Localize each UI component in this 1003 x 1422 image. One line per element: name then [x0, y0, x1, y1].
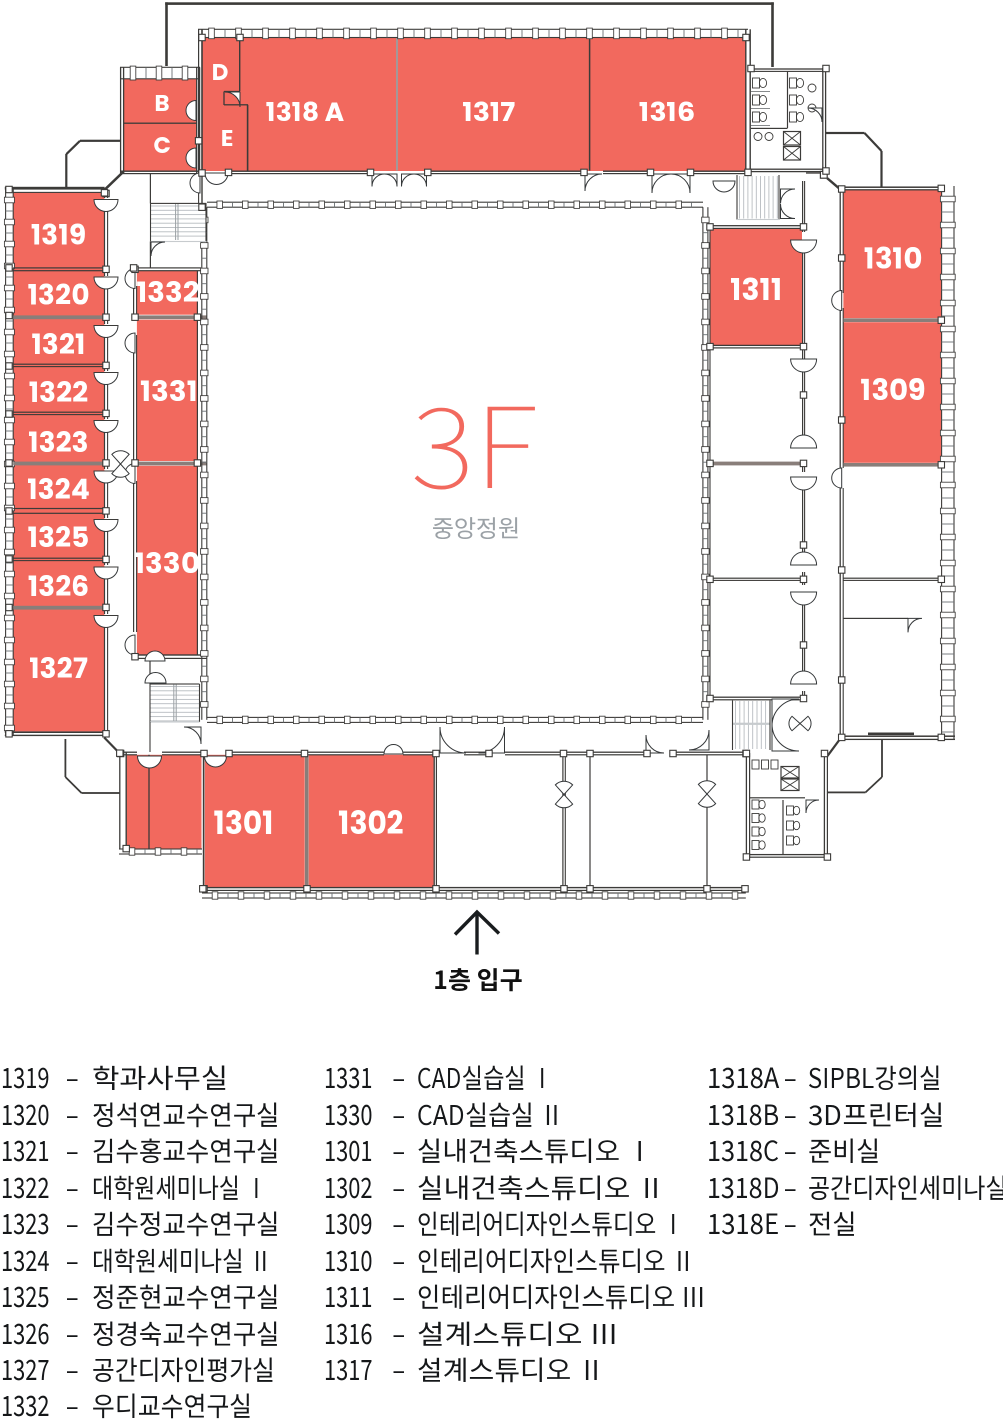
- svg-text:중앙정원: 중앙정원: [432, 509, 520, 544]
- svg-text:1316: 1316: [639, 95, 695, 131]
- svg-text:1320: 1320: [28, 276, 90, 315]
- svg-text:1325: 1325: [28, 518, 90, 557]
- svg-text:1327: 1327: [29, 649, 87, 688]
- svg-text:1317: 1317: [462, 95, 515, 131]
- svg-text:1326: 1326: [28, 567, 89, 606]
- svg-text:1319: 1319: [31, 216, 86, 255]
- svg-text:1331: 1331: [140, 373, 198, 412]
- svg-text:E: E: [221, 123, 233, 155]
- svg-text:1324: 1324: [27, 470, 89, 509]
- svg-text:1301: 1301: [214, 801, 274, 846]
- svg-text:1321: 1321: [32, 325, 86, 364]
- svg-text:1318 A: 1318 A: [266, 94, 344, 131]
- svg-text:1332: 1332: [136, 274, 199, 313]
- svg-text:1311: 1311: [730, 268, 782, 311]
- svg-text:1310: 1310: [864, 240, 922, 280]
- svg-text:1330: 1330: [134, 545, 200, 584]
- svg-text:1323: 1323: [28, 423, 88, 462]
- svg-text:1322: 1322: [29, 373, 88, 412]
- svg-text:1309: 1309: [860, 371, 925, 411]
- svg-text:C: C: [153, 130, 171, 162]
- svg-text:D: D: [212, 57, 229, 89]
- svg-text:1302: 1302: [338, 801, 404, 846]
- svg-text:3F: 3F: [411, 358, 538, 521]
- svg-text:B: B: [154, 88, 169, 120]
